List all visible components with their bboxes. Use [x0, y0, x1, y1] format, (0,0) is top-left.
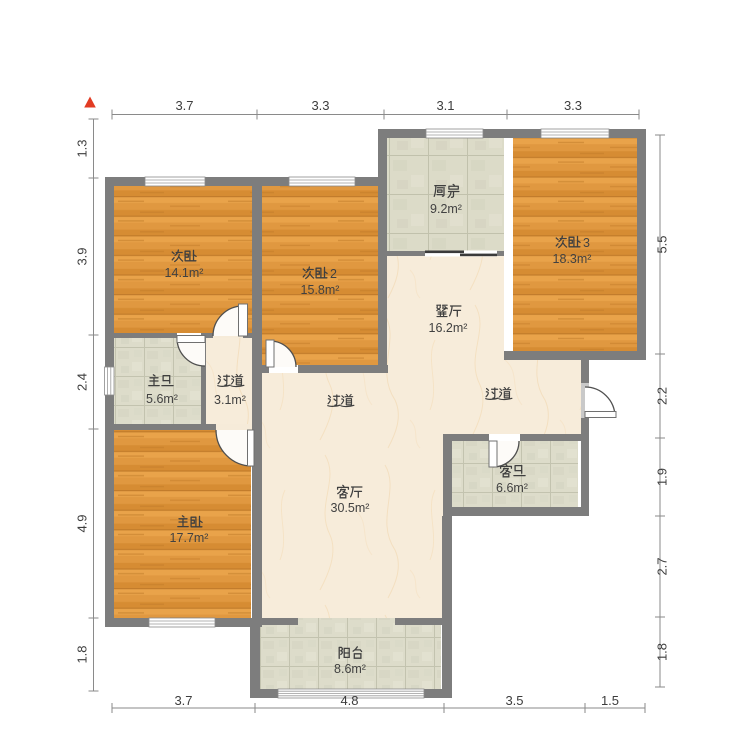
svg-text:3.7: 3.7: [174, 693, 192, 708]
svg-text:3.1m²: 3.1m²: [214, 393, 246, 407]
svg-text:1.8: 1.8: [655, 643, 670, 661]
svg-text:1.8: 1.8: [75, 645, 90, 663]
svg-text:2.7: 2.7: [655, 557, 670, 575]
svg-text:30.5m²: 30.5m²: [331, 501, 370, 515]
svg-text:2.2: 2.2: [655, 387, 670, 405]
svg-text:8.6m²: 8.6m²: [334, 662, 366, 676]
svg-text:4.9: 4.9: [75, 514, 90, 532]
svg-text:1.5: 1.5: [601, 693, 619, 708]
svg-text:3.1: 3.1: [436, 98, 454, 113]
svg-text:3.9: 3.9: [75, 247, 90, 265]
svg-text:4.8: 4.8: [340, 693, 358, 708]
svg-text:14.1m²: 14.1m²: [165, 266, 204, 280]
svg-text:3.3: 3.3: [311, 98, 329, 113]
svg-text:5.6m²: 5.6m²: [146, 392, 178, 406]
svg-text:3.3: 3.3: [564, 98, 582, 113]
svg-text:16.2m²: 16.2m²: [429, 321, 468, 335]
svg-text:3.5: 3.5: [505, 693, 523, 708]
svg-text:2.4: 2.4: [75, 373, 90, 391]
svg-text:17.7m²: 17.7m²: [170, 531, 209, 545]
svg-text:3.7: 3.7: [175, 98, 193, 113]
svg-text:3: 3: [583, 236, 590, 250]
svg-text:1.9: 1.9: [655, 468, 670, 486]
svg-text:2: 2: [330, 267, 337, 281]
svg-text:6.6m²: 6.6m²: [496, 481, 528, 495]
svg-text:9.2m²: 9.2m²: [430, 202, 462, 216]
svg-text:15.8m²: 15.8m²: [301, 283, 340, 297]
svg-text:18.3m²: 18.3m²: [553, 252, 592, 266]
svg-text:5.5: 5.5: [655, 235, 670, 253]
svg-text:1.3: 1.3: [75, 139, 90, 157]
